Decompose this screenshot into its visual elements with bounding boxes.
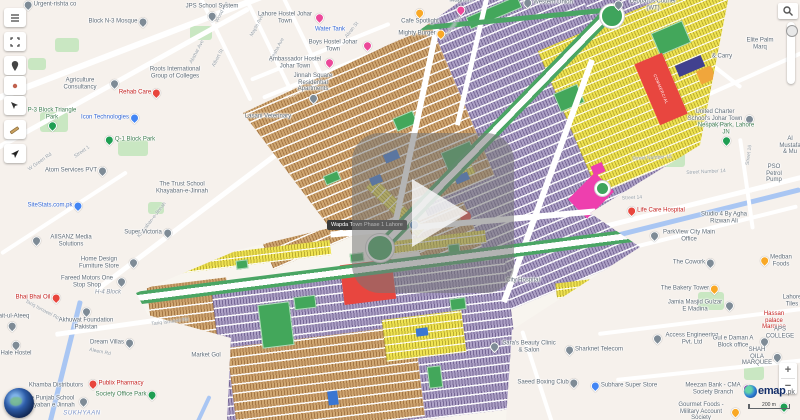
map-poi-label[interactable]: & Carry [712,54,732,61]
poi-label-text: Akhuwat Foundation Pakistan [57,317,115,330]
poi-label-text: JPS School System [186,4,239,11]
cursor-icon [9,100,21,112]
map-pin-icon[interactable] [612,0,625,11]
poi-label-text: PSO Petrol Pump [761,164,787,184]
map-pin-icon[interactable] [30,235,43,248]
plot-block-green [427,365,444,389]
map-pin-icon[interactable] [161,227,174,240]
map-pin-icon[interactable] [87,378,100,391]
zoom-slider[interactable] [787,22,795,84]
poi-label-text: H-4 Block [95,290,121,297]
map-poi-label[interactable]: Dream Villas [90,339,134,348]
poi-label-text: Jamia Masjid Gulzar E Madina [666,299,724,312]
poi-label-text: APS COLLEGE [766,326,794,339]
poi-label-text: & Carry [712,54,732,61]
poi-label-text: Icon Technologies [81,115,129,122]
map-poi-label[interactable]: JPS School System [186,4,239,21]
map-viewport[interactable]: COMMERCIALUrgent-rishta coBlock N-3 Mosq… [0,0,800,420]
fullscreen-icon [9,36,21,48]
map-pin-icon[interactable] [46,120,59,133]
map-poi-label[interactable]: Al Mustafa & Mu [779,136,800,156]
poi-label-text: Roots International Group of Colleges [146,66,204,79]
map-pin-icon[interactable] [704,257,717,270]
map-pin-icon[interactable] [758,255,771,268]
map-poi-label[interactable]: The Cowork [673,259,715,268]
map-poi-label[interactable]: Boys Hostel Johar Town [304,39,372,52]
poi-label-text: Western Union [533,0,573,6]
map-pin-icon[interactable] [455,3,468,16]
poi-label-text: Jinnah Square Residential Apartments [284,73,342,93]
earth-view-button[interactable] [4,388,34,418]
brand-suffix: .pk [786,389,795,396]
map-poi-label[interactable]: Leopards Courier (WT) [614,0,682,12]
map-pin-icon[interactable] [115,276,128,289]
canal [191,395,212,420]
poi-label-text: Studio 4 By Agha Rizwan Ali [695,211,753,224]
map-poi-label[interactable]: Society Office Park [96,391,157,400]
map-pin-icon[interactable] [648,230,661,243]
road-label: Street 14 [622,194,643,201]
map-poi-label[interactable]: Water Tank [315,27,345,34]
poi-label-text: Subhare Super Store [601,383,657,390]
zoom-in-button[interactable]: + [779,363,797,378]
map-poi-label[interactable]: Jinnah Square Residential Apartments [284,73,342,103]
map-poi-label[interactable]: Publix Pharmacy [88,380,143,389]
poi-label-text: Lahore Tiles [783,294,800,307]
map-pin-icon[interactable] [127,257,140,270]
poi-label-text: Mighty Burger [398,31,435,38]
map-pin-icon[interactable] [589,380,602,393]
map-poi-label[interactable]: Khamba Distributors [29,383,83,390]
map-pin-icon[interactable] [435,28,448,41]
poi-label-text: SHAH QILA MARQUEE [742,347,772,367]
video-play-watermark[interactable] [352,133,514,293]
poi-label-text: Bait-ul-Ateeq [0,314,29,321]
map-poi-label[interactable]: Life Care Hospital [627,207,685,216]
map-poi-label[interactable]: Akhuwat Foundation Pakistan [57,307,115,330]
map-pin-icon[interactable] [563,344,576,357]
map-poi-label[interactable]: Cafe Spotlight [401,9,439,26]
scale-label: 200 m [762,402,776,408]
map-poi-label[interactable]: City Hospital [506,278,540,285]
map-pin-icon[interactable] [10,339,23,352]
dot-button[interactable] [4,76,26,95]
road-label: Albert St [211,48,225,68]
search-button[interactable] [778,3,798,19]
map-poi-label[interactable]: Rehab Care [119,89,161,98]
map-pin-icon[interactable] [729,406,742,419]
road-label: Aleem Rd [89,347,112,357]
map-poi-label[interactable]: SiteStats.com.pk [27,202,82,211]
map-pin-icon[interactable] [103,134,116,147]
dot-icon [9,80,21,92]
poi-label-text: Sharknet Telecom [575,347,623,354]
poi-label-text: City Hospital [506,278,540,285]
play-icon [412,179,468,247]
poi-label-text: Super Victoria [124,230,162,237]
poi-label-text: Lasani Veterinary [245,114,291,121]
map-pin-icon[interactable] [146,389,159,402]
poi-label-text: Bhai Bhai Oil [16,295,51,302]
map-poi-label[interactable]: Nespak Park, Lahore JN [697,122,755,145]
poi-label-text: P-3 Block Triangle Park [23,107,81,120]
emap-logo[interactable]: emap .pk [744,385,795,398]
plot-block-green [235,259,248,269]
poi-label-text: Market Gol [191,353,220,360]
map-poi-label[interactable]: Magnum [449,0,472,14]
map-poi-label[interactable]: Sara's Beauty Clinic & Salon [490,340,558,353]
map-poi-label[interactable]: Medban Foods [760,254,792,267]
map-poi-label[interactable]: Bait-ul-Ateeq [0,314,29,331]
poi-label-text: The Trust School Khayaban-e-Jinnah [153,181,211,194]
map-pin-icon[interactable] [49,292,62,305]
map-pin-icon[interactable] [313,12,326,25]
map-pin-icon[interactable] [361,40,374,53]
brand-name: emap [758,385,786,397]
poi-label-text: Meezan Bank - CMA Society Branch [684,382,742,395]
map-pin-icon[interactable] [96,165,109,178]
locate-icon [9,148,21,160]
poi-label-text: The Cowork [673,260,705,267]
plot-block-blue [193,334,204,348]
poi-label-text: Water Tank [315,27,345,34]
poi-label-text: Dream Villas [90,340,124,347]
poi-label-text: ParkView City Main Office [660,229,718,242]
menu-icon [9,12,21,24]
map-pin-icon[interactable] [123,337,136,350]
fullscreen-button[interactable] [4,32,26,51]
emap-globe-icon [744,385,757,398]
poi-label-text: Saeed Boxing Club [517,380,568,387]
poi-label-text: Al Mustafa & Mu [779,136,800,156]
map-poi-label[interactable]: Sharknet Telecom [565,346,623,355]
map-poi-label[interactable]: Hale Hostel [0,341,31,358]
map-pin-icon[interactable] [77,396,90,409]
map-poi-label[interactable]: Market Gol [191,353,220,360]
roundabout [595,181,610,196]
map-poi-label[interactable]: Mighty Burger [398,30,445,39]
poi-label-text: Hale Hostel [0,351,31,358]
plot-block-green [257,301,294,349]
map-poi-label[interactable]: SUKHYAAN [63,411,100,418]
map-pin-icon[interactable] [568,377,581,390]
map-pin-icon[interactable] [128,112,141,125]
map-pin-icon[interactable] [323,57,336,70]
map-pin-icon[interactable] [708,283,721,296]
map-poi-label[interactable]: Agriculture Consultancy [51,77,119,90]
map-poi-label[interactable]: APS COLLEGE [766,326,794,339]
map-poi-label[interactable]: Elite Palm Marq [740,37,780,50]
poi-label-text: Rehab Care [119,90,151,97]
park-area [28,58,46,70]
map-poi-label[interactable]: Jamia Masjid Gulzar E Madina [666,299,734,312]
map-pin-icon[interactable] [723,300,736,313]
map-pin-icon[interactable] [414,7,427,20]
measure-icon [9,124,21,136]
map-pin-icon[interactable] [72,200,85,213]
road-label: Street 1 [73,145,91,160]
marker-icon [9,60,21,72]
cursor-button[interactable] [4,96,26,115]
poi-label-text: Khamba Distributors [29,383,83,390]
map-poi-label[interactable]: Roots International Group of Colleges [146,66,204,79]
map-pin-icon[interactable] [150,87,163,100]
poi-label-text: Fareed Motors One Stop Shop [58,275,116,288]
plot-block-green [449,297,466,311]
poi-label-text: The Bakery Tower [661,286,709,293]
map-pin-icon[interactable] [6,319,19,332]
map-poi-label[interactable]: Meezan Bank - CMA Society Branch [684,382,752,395]
map-poi-label[interactable]: Urgent-rishta co [24,1,77,10]
map-poi-label[interactable]: Home Design Furniture Store [70,256,138,269]
map-poi-label[interactable]: Studio 4 By Agha Rizwan Ali [695,211,753,224]
poi-label-text: Sara's Beauty Clinic & Salon [500,340,558,353]
road-label: Street Number 14 [686,168,726,176]
map-pin-icon[interactable] [771,351,784,364]
poi-label-text: Q-1 Block Park [115,137,155,144]
map-pin-icon[interactable] [307,92,320,105]
plot-block-blue [327,390,339,405]
poi-label-text: AIISANZ Media Solutions [42,234,100,247]
map-pin-icon[interactable] [206,9,219,22]
map-poi-label[interactable]: Fareed Motors One Stop Shop [58,275,126,288]
map-poi-label[interactable]: Lasani Veterinary [245,114,291,121]
poi-label-text: Lahore Hostel Johar Town [256,11,314,24]
measure-button[interactable] [4,120,26,139]
map-poi-label[interactable]: Western Union [523,0,573,8]
menu-button[interactable] [4,8,26,27]
left-toolbar [4,8,26,168]
map-pin-icon[interactable] [651,333,664,346]
map-poi-label[interactable]: The Bakery Tower [661,285,719,294]
poi-label-text: Urgent-rishta co [34,2,77,9]
map-poi-label[interactable]: Super Victoria [124,229,172,238]
poi-label-text: Atom Services PVT [45,168,97,175]
poi-label-text: Nespak Park, Lahore JN [697,122,755,135]
map-pin-icon[interactable] [720,135,733,148]
poi-label-text: Gourmet Foods - Military Account Society [672,402,730,420]
poi-label-text: Life Care Hospital [637,208,685,215]
poi-label-text: Agriculture Consultancy [51,77,109,90]
poi-label-text: Publix Pharmacy [98,381,143,388]
map-poi-label[interactable]: H-4 Block [95,290,121,297]
zoom-slider-handle[interactable] [786,25,798,37]
poi-label-text: Leopards Courier (WT) [624,0,682,12]
map-poi-label[interactable]: Lahore Hostel Johar Town [256,11,324,24]
map-poi-label[interactable]: Q-1 Block Park [105,136,155,145]
map-pin-icon[interactable] [80,305,93,318]
poi-label-text: SUKHYAAN [63,411,100,418]
map-pin-icon[interactable] [137,16,150,29]
plot-block-green [293,295,316,311]
park-area [55,38,79,52]
plot-block-blue [416,327,429,336]
map-pin-icon[interactable] [108,78,121,91]
map-pin-icon[interactable] [625,205,638,218]
map-poi-label[interactable]: Icon Technologies [81,114,139,123]
search-icon [782,5,794,17]
map-poi-label[interactable]: Block N-3 Mosque [88,18,147,27]
map-poi-label[interactable]: Subhare Super Store [591,382,657,391]
marker-button[interactable] [4,56,26,75]
map-poi-label[interactable]: The Trust School Khayaban-e-Jinnah [153,181,211,194]
locate-button[interactable] [4,144,26,163]
map-poi-label[interactable]: SHAH QILA MARQUEE [742,347,782,367]
poi-label-text: Elite Palm Marq [740,37,780,50]
map-poi-label[interactable]: AIISANZ Media Solutions [32,234,100,247]
map-scale: 200 m [748,402,790,409]
map-poi-label[interactable]: P-3 Block Triangle Park [23,107,81,130]
map-poi-label[interactable]: ParkView City Main Office [650,229,718,242]
poi-label-text: Block N-3 Mosque [88,19,137,26]
poi-label-text: SiteStats.com.pk [27,203,72,210]
poi-label-text: Medban Foods [770,254,792,267]
map-poi-label[interactable]: Lahore Tiles [783,294,800,307]
poi-label-text: Boys Hostel Johar Town [304,39,362,52]
poi-label-text: Society Office Park [96,392,147,399]
map-poi-label[interactable]: PSO Petrol Pump [761,164,787,184]
map-poi-label[interactable]: Saeed Boxing Club [517,379,578,388]
poi-label-text: Cafe Spotlight [401,19,439,26]
map-poi-label[interactable]: Gourmet Foods - Military Account Society [672,402,740,420]
map-poi-label[interactable]: Ambassador Hostel Johar Town [266,56,334,69]
map-poi-label[interactable]: Atom Services PVT [45,167,107,176]
map-poi-label[interactable]: Bhai Bhai Oil [16,294,61,303]
poi-label-text: Ambassador Hostel Johar Town [266,56,324,69]
road-label: Street 16 [745,145,754,166]
map-pin-icon[interactable] [488,341,501,354]
poi-label-text: Magnum [449,0,472,4]
poi-label-text: Home Design Furniture Store [70,256,128,269]
